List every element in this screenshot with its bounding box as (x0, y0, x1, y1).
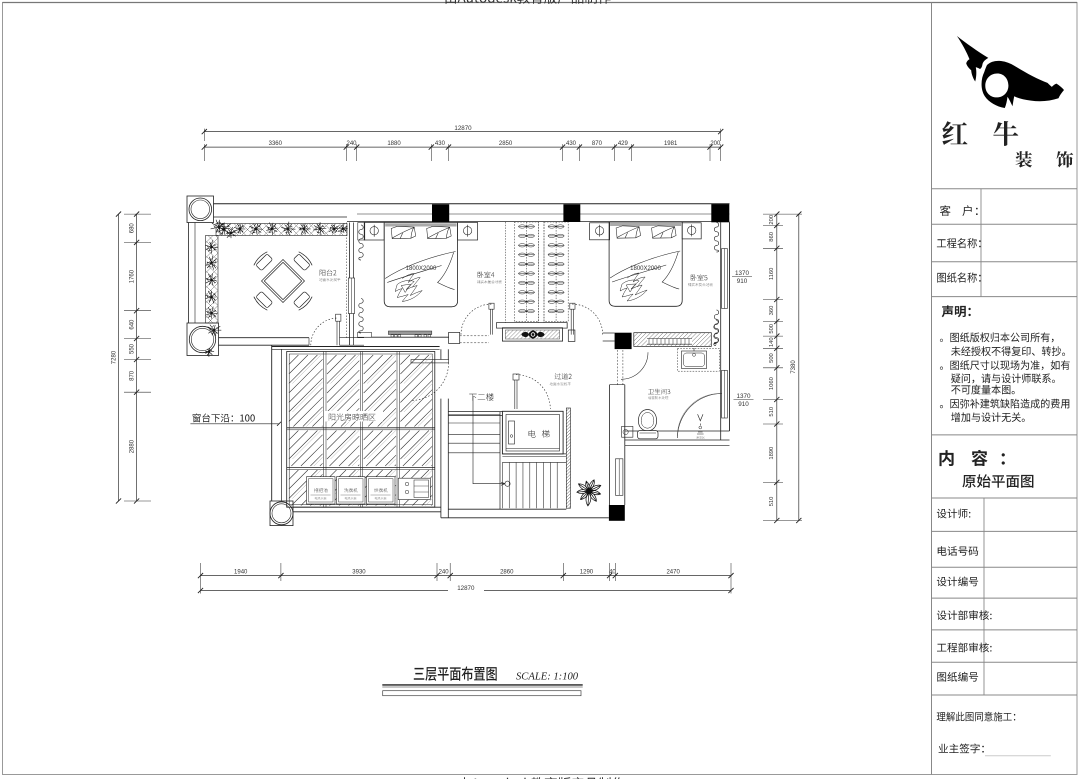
svg-text:1981: 1981 (664, 141, 678, 147)
svg-text:7380: 7380 (791, 360, 797, 374)
svg-text:1060: 1060 (769, 377, 775, 390)
svg-text:1370: 1370 (736, 393, 751, 400)
svg-text:3360: 3360 (269, 141, 283, 147)
svg-text:1940: 1940 (234, 569, 248, 575)
svg-text:870: 870 (129, 370, 135, 381)
svg-text:2860: 2860 (500, 569, 514, 575)
svg-text:429: 429 (618, 141, 629, 147)
svg-text:1800X2000: 1800X2000 (630, 266, 661, 272)
svg-text:430: 430 (566, 141, 577, 147)
svg-text:870: 870 (592, 141, 603, 147)
svg-text:1760: 1760 (129, 269, 135, 283)
svg-text:200: 200 (710, 141, 721, 147)
svg-text:360: 360 (769, 306, 775, 316)
svg-text:SCALE: 1:100: SCALE: 1:100 (516, 672, 579, 683)
svg-text:1370: 1370 (735, 270, 750, 277)
svg-text:1880: 1880 (387, 141, 401, 147)
svg-text:1800X2000: 1800X2000 (406, 266, 437, 272)
svg-text:12870: 12870 (454, 125, 472, 132)
svg-text:680: 680 (129, 223, 135, 234)
svg-text:510: 510 (769, 497, 775, 507)
svg-text:240: 240 (439, 569, 450, 575)
svg-text:550: 550 (129, 343, 135, 354)
svg-text:2470: 2470 (666, 569, 680, 575)
svg-text:430: 430 (435, 141, 446, 147)
svg-text:500: 500 (769, 353, 775, 363)
svg-text:40: 40 (609, 569, 616, 575)
svg-text:1890: 1890 (769, 447, 775, 460)
svg-text:860: 860 (769, 232, 775, 242)
svg-text:500: 500 (769, 324, 775, 334)
svg-text:240: 240 (346, 141, 357, 147)
svg-text:910: 910 (737, 278, 748, 285)
svg-text:200: 200 (769, 215, 775, 225)
svg-text:140: 140 (769, 337, 775, 347)
svg-text:3930: 3930 (352, 569, 366, 575)
svg-text:2880: 2880 (129, 439, 135, 453)
svg-text:1160: 1160 (769, 268, 775, 280)
svg-text:640: 640 (129, 319, 135, 330)
svg-text:1290: 1290 (580, 569, 594, 575)
svg-text:12870: 12870 (457, 585, 475, 592)
svg-text:910: 910 (738, 401, 749, 408)
svg-text:7280: 7280 (111, 350, 117, 364)
svg-text:2850: 2850 (499, 141, 513, 147)
svg-text:510: 510 (769, 407, 775, 417)
